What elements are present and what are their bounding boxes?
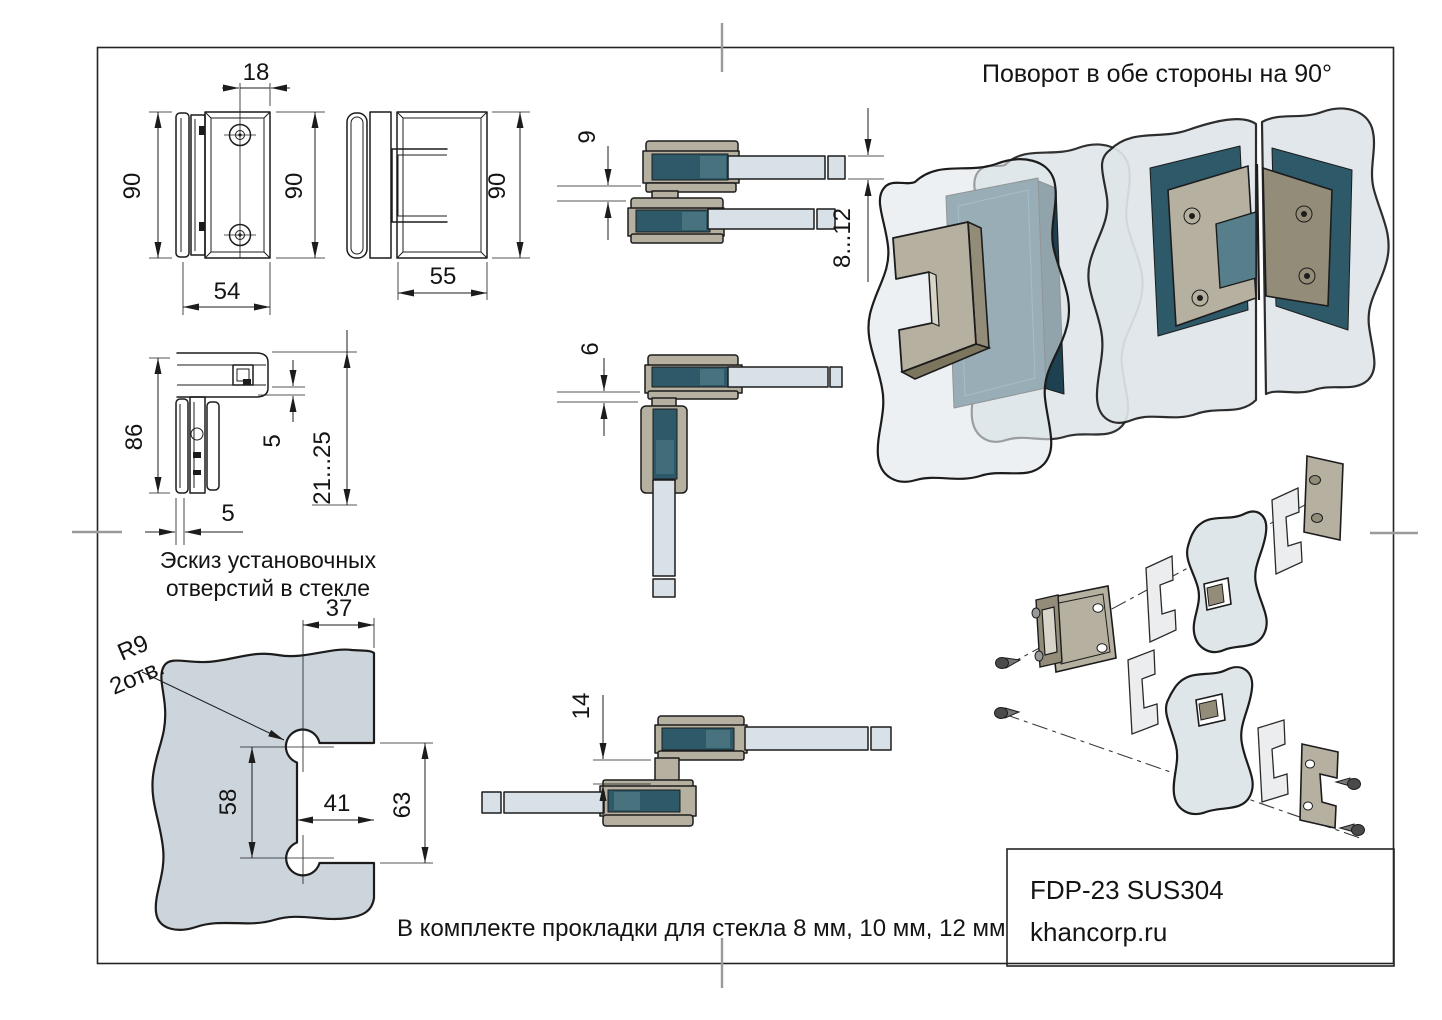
dim-41: 41 bbox=[297, 790, 374, 820]
rotation-note: Поворот в обе стороны на 90° bbox=[982, 60, 1332, 88]
screw bbox=[1336, 778, 1361, 790]
dim-90-left: 90 bbox=[119, 112, 172, 258]
dim-21-25: 21...25 bbox=[272, 330, 357, 505]
glass-piece-upper bbox=[1187, 512, 1267, 652]
dim-label: 6 bbox=[577, 342, 604, 355]
gasket-note: В комплекте прокладки для стекла 8 мм, 1… bbox=[397, 915, 1005, 942]
dim-37: 37 bbox=[303, 595, 374, 648]
dim-18: 18 bbox=[222, 59, 290, 106]
dim-label: 90 bbox=[281, 173, 308, 200]
cover-plate-top bbox=[1304, 456, 1343, 540]
corner-section-view: 86 5 21...25 5 bbox=[121, 330, 357, 545]
dim-label: 37 bbox=[326, 595, 353, 622]
dim-label: 90 bbox=[119, 173, 146, 200]
gasket-seal bbox=[1146, 556, 1176, 642]
glass-cutout-sketch: 37 R9 2отв. 58 41 63 bbox=[106, 595, 433, 930]
dim-label: 86 bbox=[121, 424, 148, 451]
render-open-90 bbox=[1088, 109, 1388, 423]
dim-label: 5 bbox=[259, 434, 286, 447]
dim-label: 63 bbox=[389, 792, 416, 819]
dim-label: 58 bbox=[215, 789, 242, 816]
section-open-180: 9 8...12 bbox=[557, 108, 884, 282]
dim-label: 54 bbox=[214, 278, 241, 305]
gasket-seal bbox=[1128, 650, 1158, 734]
dim-label: 41 bbox=[324, 790, 351, 817]
dim-55: 55 bbox=[398, 262, 487, 300]
dim-90-right: 90 bbox=[276, 112, 325, 258]
dim-54: 54 bbox=[183, 262, 270, 315]
dim-86: 86 bbox=[121, 358, 170, 493]
front-view: 18 90 90 54 bbox=[119, 59, 325, 315]
exploded-view bbox=[995, 456, 1365, 838]
side-view: 90 55 bbox=[347, 112, 530, 300]
drawing-sheet: 18 90 90 54 bbox=[0, 0, 1442, 1020]
dim-5-wall: 5 bbox=[145, 498, 243, 545]
hinge-window bbox=[1216, 212, 1256, 288]
dim-6: 6 bbox=[557, 342, 640, 436]
dim-90-side: 90 bbox=[484, 112, 530, 258]
dim-63: 63 bbox=[380, 743, 433, 863]
gasket-seal bbox=[1272, 488, 1302, 574]
sketch-caption: Эскиз установочных отверстий в стекле bbox=[160, 547, 377, 601]
dim-label: 5 bbox=[221, 500, 234, 527]
hinge-body bbox=[1032, 586, 1116, 672]
dim-label: 21...25 bbox=[309, 431, 336, 504]
screw bbox=[1340, 824, 1365, 836]
glass-piece-lower bbox=[1166, 667, 1253, 814]
screw bbox=[995, 708, 1020, 719]
gasket-seal bbox=[1258, 720, 1288, 802]
dim-label: 9 bbox=[574, 130, 601, 143]
cover-plate-bottom bbox=[1300, 744, 1338, 828]
dim-label: 18 bbox=[243, 59, 270, 86]
section-open-90: 6 bbox=[557, 342, 842, 597]
dim-label: 14 bbox=[568, 693, 595, 720]
technical-drawing: 18 90 90 54 bbox=[0, 0, 1442, 1020]
hinge-plate-right bbox=[1263, 168, 1332, 306]
dim-label: 8...12 bbox=[829, 208, 856, 268]
website: khancorp.ru bbox=[1030, 917, 1167, 947]
section-offset-180: 14 bbox=[482, 693, 891, 826]
dim-5-gap: 5 bbox=[258, 360, 305, 448]
dim-label: 90 bbox=[484, 173, 511, 200]
dim-label: 55 bbox=[430, 263, 457, 290]
model-number: FDP-23 SUS304 bbox=[1030, 875, 1224, 905]
screw bbox=[996, 658, 1021, 669]
title-block: FDP-23 SUS304 khancorp.ru bbox=[1007, 849, 1394, 966]
caption-line1: Эскиз установочных bbox=[160, 547, 377, 573]
dim-8-12: 8...12 bbox=[829, 108, 884, 282]
